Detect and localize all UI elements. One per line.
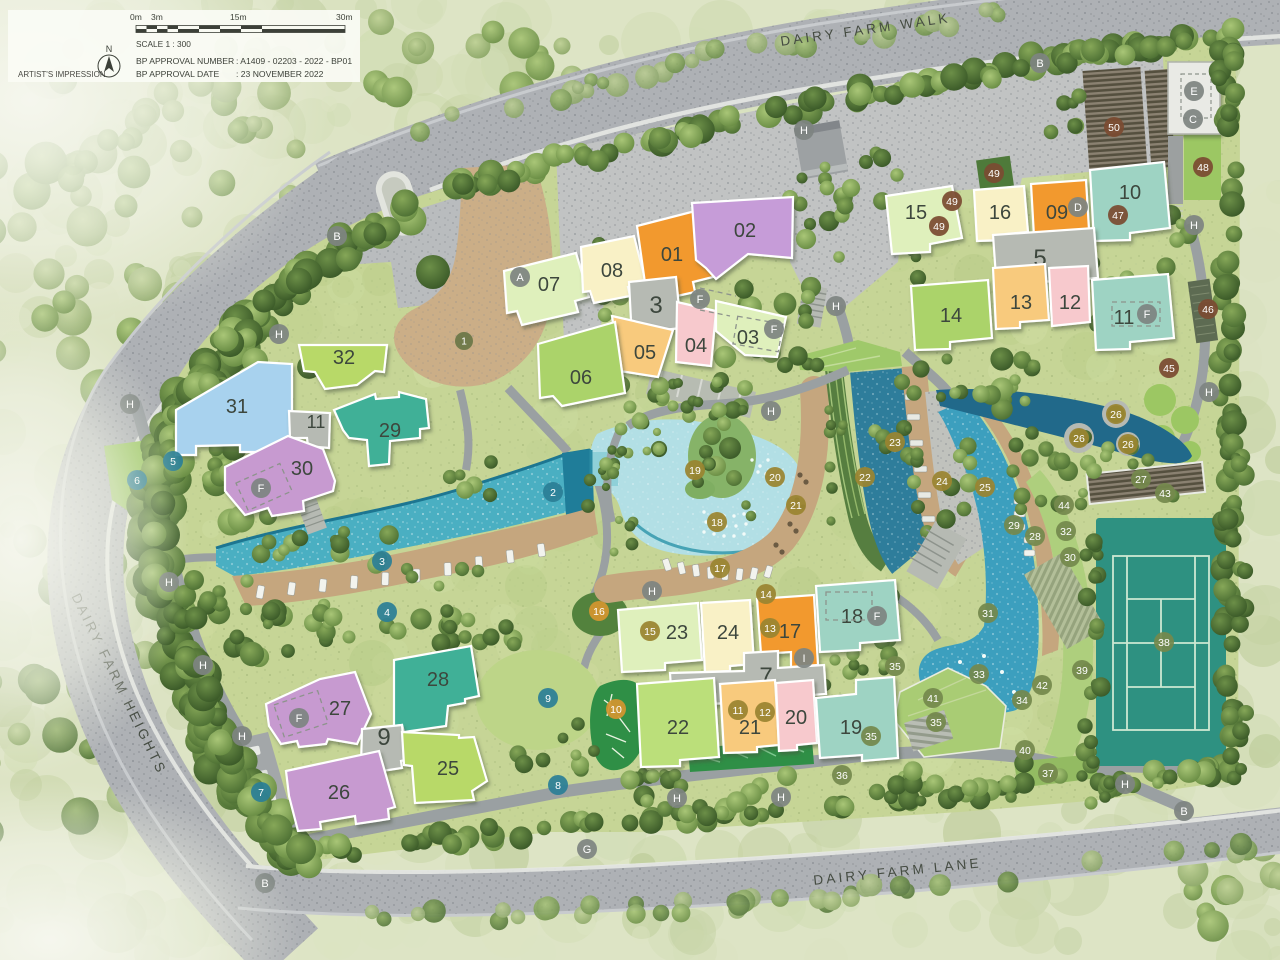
svg-text:28: 28 <box>1029 531 1041 543</box>
svg-text:E: E <box>1190 86 1197 98</box>
svg-text:F: F <box>771 324 778 336</box>
svg-text:25: 25 <box>437 758 459 780</box>
svg-text:H: H <box>275 329 283 341</box>
svg-text:18: 18 <box>841 606 863 628</box>
svg-text:47: 47 <box>1112 210 1124 222</box>
svg-text:35: 35 <box>889 661 901 673</box>
svg-text:11: 11 <box>307 412 326 432</box>
svg-text:N: N <box>106 44 113 54</box>
svg-text:46: 46 <box>1202 304 1214 316</box>
svg-text:21: 21 <box>790 500 802 512</box>
svg-text:H: H <box>199 660 207 672</box>
svg-text:H: H <box>1205 387 1213 399</box>
svg-text:38: 38 <box>1158 637 1170 649</box>
svg-text:44: 44 <box>1058 500 1070 512</box>
svg-text:08: 08 <box>601 260 623 282</box>
svg-text:26: 26 <box>1122 439 1134 451</box>
svg-text:H: H <box>767 406 775 418</box>
svg-text:26: 26 <box>1073 433 1085 445</box>
svg-text:15: 15 <box>905 202 927 224</box>
svg-text:B: B <box>333 231 340 243</box>
svg-text:16: 16 <box>989 202 1011 224</box>
svg-text:26: 26 <box>328 782 350 804</box>
svg-text:0m: 0m <box>130 12 142 22</box>
svg-text:3: 3 <box>379 556 385 568</box>
svg-text:23: 23 <box>889 437 901 449</box>
svg-text:50: 50 <box>1108 122 1120 134</box>
svg-text:A: A <box>516 272 524 284</box>
svg-text:F: F <box>258 483 265 495</box>
svg-text:48: 48 <box>1197 162 1209 174</box>
svg-text:: 23 NOVEMBER 2022: : 23 NOVEMBER 2022 <box>236 69 324 79</box>
svg-text:35: 35 <box>930 717 942 729</box>
svg-text:30: 30 <box>1064 552 1076 564</box>
svg-text:22: 22 <box>859 472 871 484</box>
svg-text:49: 49 <box>946 196 958 208</box>
svg-text:35: 35 <box>865 731 877 743</box>
svg-text:F: F <box>1144 309 1151 321</box>
svg-text:49: 49 <box>933 221 945 233</box>
svg-text:15: 15 <box>644 626 656 638</box>
svg-text:01: 01 <box>661 244 683 266</box>
svg-text:2: 2 <box>550 487 556 499</box>
svg-text:H: H <box>648 586 656 598</box>
svg-text:29: 29 <box>379 420 401 442</box>
svg-text:BP APPROVAL DATE: BP APPROVAL DATE <box>136 69 220 79</box>
svg-text:12: 12 <box>759 707 771 719</box>
svg-text:40: 40 <box>1019 745 1031 757</box>
svg-text:3m: 3m <box>151 12 163 22</box>
svg-text:18: 18 <box>711 517 723 529</box>
svg-text:29: 29 <box>1008 520 1020 532</box>
svg-text:SCALE 1 : 300: SCALE 1 : 300 <box>136 39 191 49</box>
svg-text:06: 06 <box>570 367 592 389</box>
svg-text:02: 02 <box>734 220 756 242</box>
svg-text:14: 14 <box>760 589 772 601</box>
svg-text:24: 24 <box>717 622 739 644</box>
svg-text:BP APPROVAL NUMBER: BP APPROVAL NUMBER <box>136 56 234 66</box>
svg-text:45: 45 <box>1163 363 1175 375</box>
svg-text:13: 13 <box>764 623 776 635</box>
svg-text:37: 37 <box>1042 768 1054 780</box>
svg-text:07: 07 <box>538 274 560 296</box>
svg-text:41: 41 <box>927 693 939 705</box>
svg-text:31: 31 <box>982 608 994 620</box>
svg-text:21: 21 <box>739 717 761 739</box>
svg-text:1: 1 <box>461 337 467 348</box>
svg-text:19: 19 <box>840 717 862 739</box>
svg-text:B: B <box>1180 806 1187 818</box>
svg-text:17: 17 <box>779 621 801 643</box>
svg-text:33: 33 <box>973 669 985 681</box>
svg-text:H: H <box>1121 779 1129 791</box>
svg-text:D: D <box>1074 202 1082 214</box>
svg-text:F: F <box>697 294 704 306</box>
svg-text:C: C <box>1189 114 1197 126</box>
svg-text:H: H <box>832 301 840 313</box>
svg-text:34: 34 <box>1016 695 1028 707</box>
svg-text:3: 3 <box>649 292 662 319</box>
svg-text:G: G <box>583 844 592 856</box>
svg-text:H: H <box>673 793 681 805</box>
svg-text:F: F <box>296 713 303 725</box>
svg-text:43: 43 <box>1159 488 1171 500</box>
svg-text:9: 9 <box>545 693 551 705</box>
svg-text:31: 31 <box>226 396 248 418</box>
svg-text:32: 32 <box>1060 526 1072 538</box>
svg-text:15m: 15m <box>230 12 247 22</box>
svg-text:36: 36 <box>836 770 848 782</box>
svg-text:20: 20 <box>769 472 781 484</box>
svg-text:20: 20 <box>785 707 807 729</box>
svg-text:14: 14 <box>940 305 962 327</box>
svg-text:H: H <box>1190 220 1198 232</box>
svg-text:04: 04 <box>685 335 707 357</box>
svg-text:11: 11 <box>733 705 744 717</box>
svg-text:12: 12 <box>1059 292 1081 314</box>
svg-text:17: 17 <box>714 563 726 575</box>
svg-text:H: H <box>777 792 785 804</box>
svg-text:49: 49 <box>988 168 1000 180</box>
svg-text:: A1409 - 02203 - 2022 - BP01: : A1409 - 02203 - 2022 - BP01 <box>236 56 352 66</box>
svg-text:28: 28 <box>427 669 449 691</box>
svg-text:32: 32 <box>333 347 355 369</box>
svg-text:24: 24 <box>936 476 948 488</box>
svg-text:13: 13 <box>1010 292 1032 314</box>
svg-text:22: 22 <box>667 717 689 739</box>
svg-text:27: 27 <box>1135 474 1147 486</box>
svg-text:23: 23 <box>666 622 688 644</box>
svg-text:30: 30 <box>291 458 313 480</box>
svg-text:09: 09 <box>1046 202 1068 224</box>
svg-text:26: 26 <box>1110 409 1122 421</box>
svg-text:19: 19 <box>689 465 701 477</box>
svg-text:27: 27 <box>329 698 351 720</box>
svg-text:I: I <box>802 653 805 665</box>
svg-text:39: 39 <box>1076 665 1088 677</box>
svg-text:10: 10 <box>610 704 622 716</box>
svg-text:10: 10 <box>1119 182 1141 204</box>
svg-text:H: H <box>800 125 808 137</box>
svg-text:30m: 30m <box>336 12 353 22</box>
svg-text:4: 4 <box>384 607 390 619</box>
svg-text:42: 42 <box>1036 680 1048 692</box>
svg-text:ARTIST'S IMPRESSION: ARTIST'S IMPRESSION <box>18 70 106 79</box>
svg-text:16: 16 <box>593 606 605 618</box>
svg-text:F: F <box>874 611 881 623</box>
svg-text:25: 25 <box>979 482 991 494</box>
svg-text:8: 8 <box>555 780 561 792</box>
svg-text:H: H <box>238 731 246 743</box>
svg-text:7: 7 <box>258 787 264 799</box>
svg-text:05: 05 <box>634 342 656 364</box>
svg-text:9: 9 <box>377 724 390 751</box>
svg-text:B: B <box>1036 58 1043 70</box>
